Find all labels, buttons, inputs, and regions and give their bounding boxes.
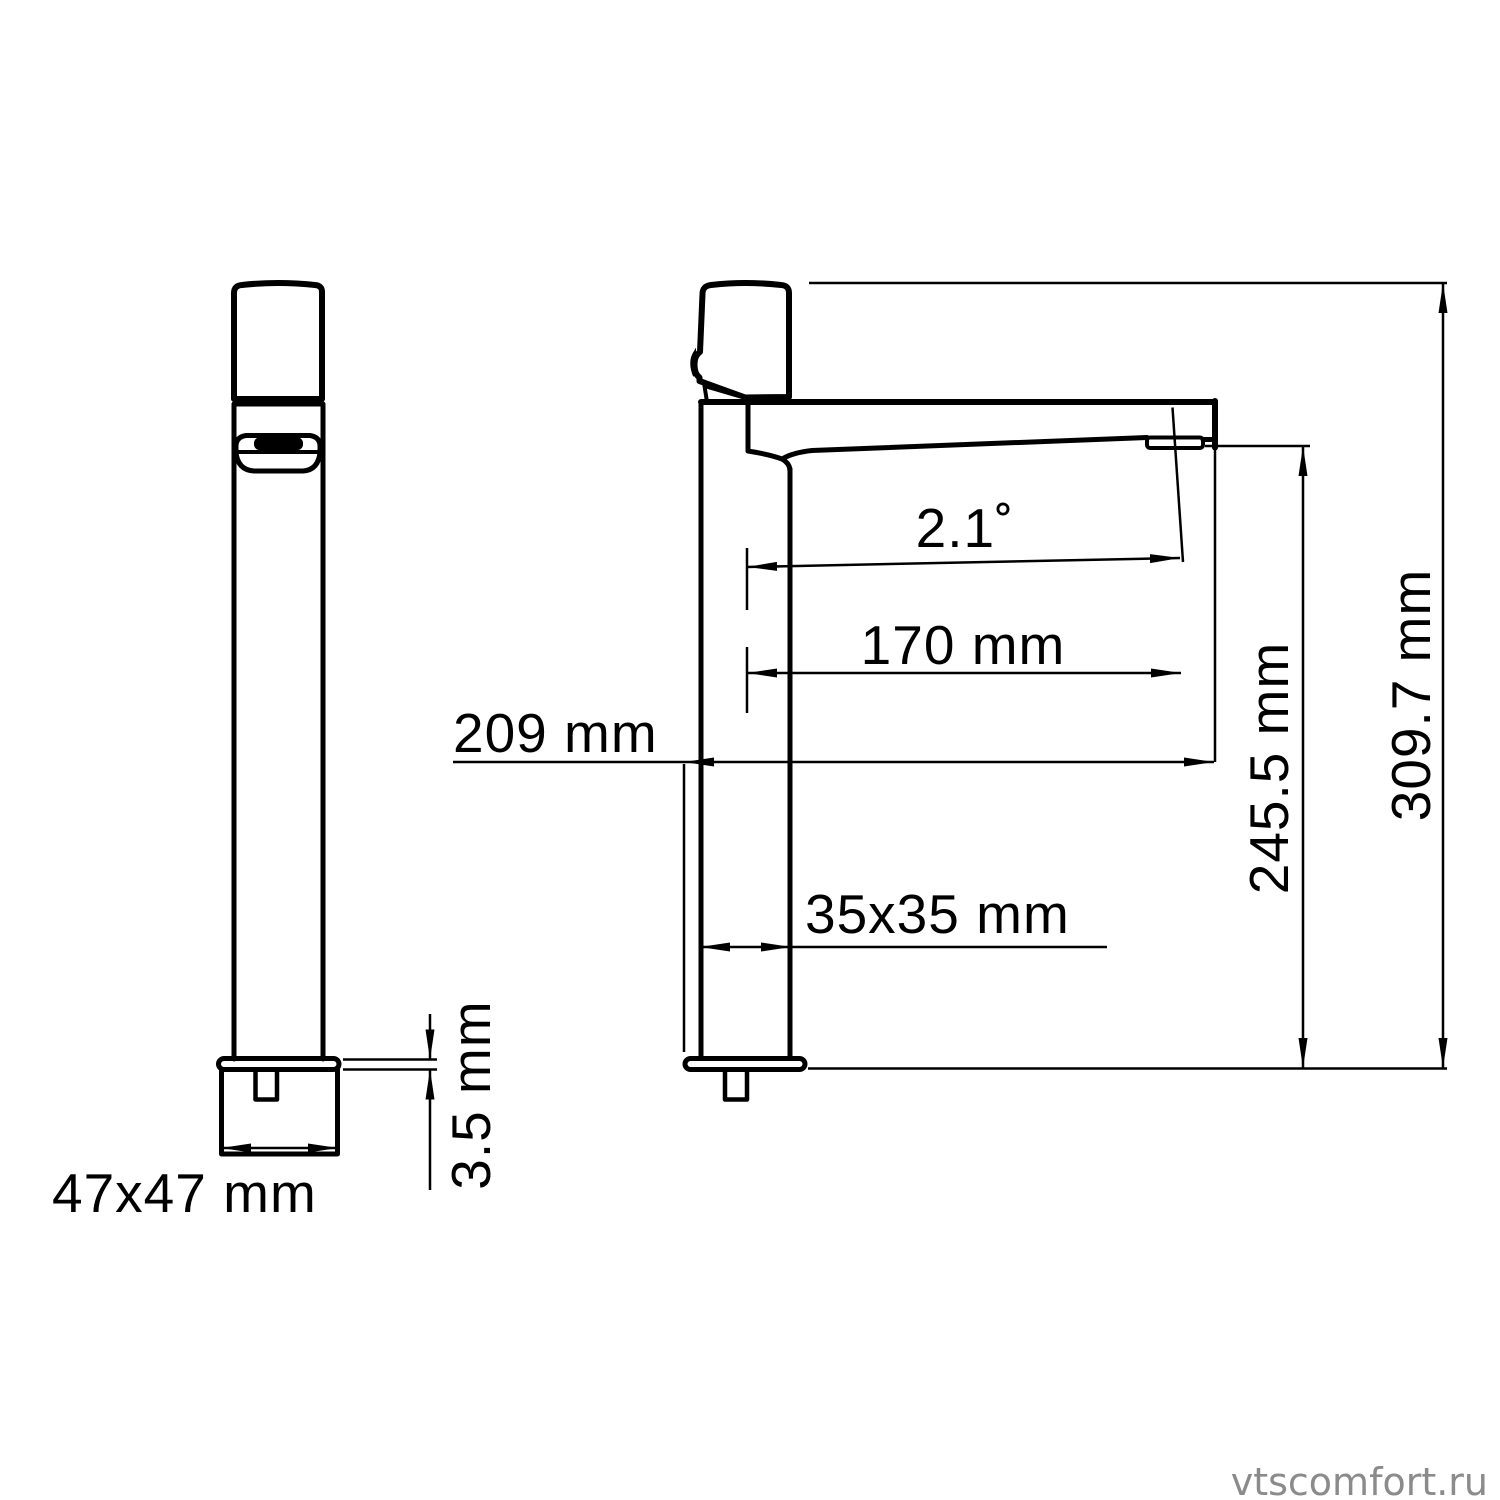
front-handle [234, 283, 322, 399]
dimension-base-47x47: 47x47 mm [52, 1148, 338, 1224]
dim-label-base: 47x47 mm [52, 1162, 317, 1224]
dim-label-total-height: 309.7 mm [1380, 569, 1442, 822]
dim-ext-plate [343, 1060, 437, 1070]
dim-label-body: 35x35 mm [805, 883, 1070, 945]
dimension-reach-209: 209 mm [453, 447, 1215, 1052]
side-spout-bottom [782, 438, 1147, 460]
side-base-plate [685, 1059, 805, 1070]
side-view [685, 283, 1447, 1100]
dimension-body-35x35: 35x35 mm [700, 883, 1107, 947]
dim-label-spout-height: 245.5 mm [1238, 642, 1300, 895]
dim-label-plate: 3.5 mm [440, 1000, 502, 1189]
front-spout-mouth [236, 436, 320, 472]
dim-line-angle [747, 558, 1180, 567]
side-spout-fillet [748, 451, 790, 471]
side-handle-end-cap [692, 353, 695, 376]
front-mounting-stud [256, 1069, 278, 1100]
front-view [219, 283, 340, 1154]
faucet-technical-drawing: 47x47 mm 3.5 mm 2.1˚ 170 mm 209 mm 35x35… [0, 0, 1500, 1500]
dim-label-spout-reach: 170 mm [861, 614, 1066, 676]
dim-label-angle: 2.1˚ [916, 497, 1015, 559]
side-handle [695, 283, 790, 398]
dim-label-reach: 209 mm [453, 702, 658, 764]
front-base-box [222, 1069, 338, 1154]
dimension-spout-reach-170: 170 mm [747, 548, 1181, 713]
watermark-text: vtscomfort.ru [1231, 1460, 1488, 1500]
front-spout-underside [236, 452, 320, 471]
dimension-spout-height-245-5: 245.5 mm [1205, 446, 1310, 1068]
drawing-page: 47x47 mm 3.5 mm 2.1˚ 170 mm 209 mm 35x35… [0, 0, 1500, 1500]
front-aerator-slot [255, 439, 302, 450]
front-column [234, 404, 323, 1059]
dimension-angle-2-1: 2.1˚ [747, 408, 1183, 568]
side-mounting-stud [725, 1069, 747, 1100]
dimension-plate-3-5: 3.5 mm [343, 1000, 502, 1190]
dim-ext-angle-slant [1173, 408, 1184, 563]
